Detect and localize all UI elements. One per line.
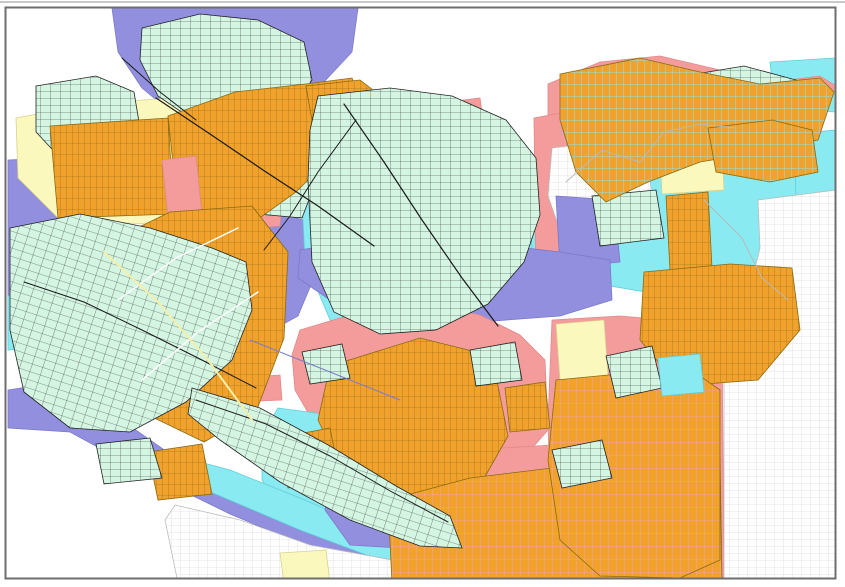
zone-orange-small-a [505,382,550,432]
zone-mint-small-e [96,438,162,484]
zone-orange-topright-lower [708,120,818,182]
zone-mint-small-d [470,342,522,386]
zone-cyan-small-right [658,354,704,396]
map-canvas [0,0,845,587]
zone-orange-topleft-block [50,118,174,218]
zone-orange-strip-right-mid [666,192,712,270]
window-edge-line [0,1,845,3]
map-viewport [0,0,845,587]
zone-yellow-center-right [556,320,608,380]
zone-mint-small-a [606,346,662,398]
zone-pink-topleft-small [162,156,202,218]
